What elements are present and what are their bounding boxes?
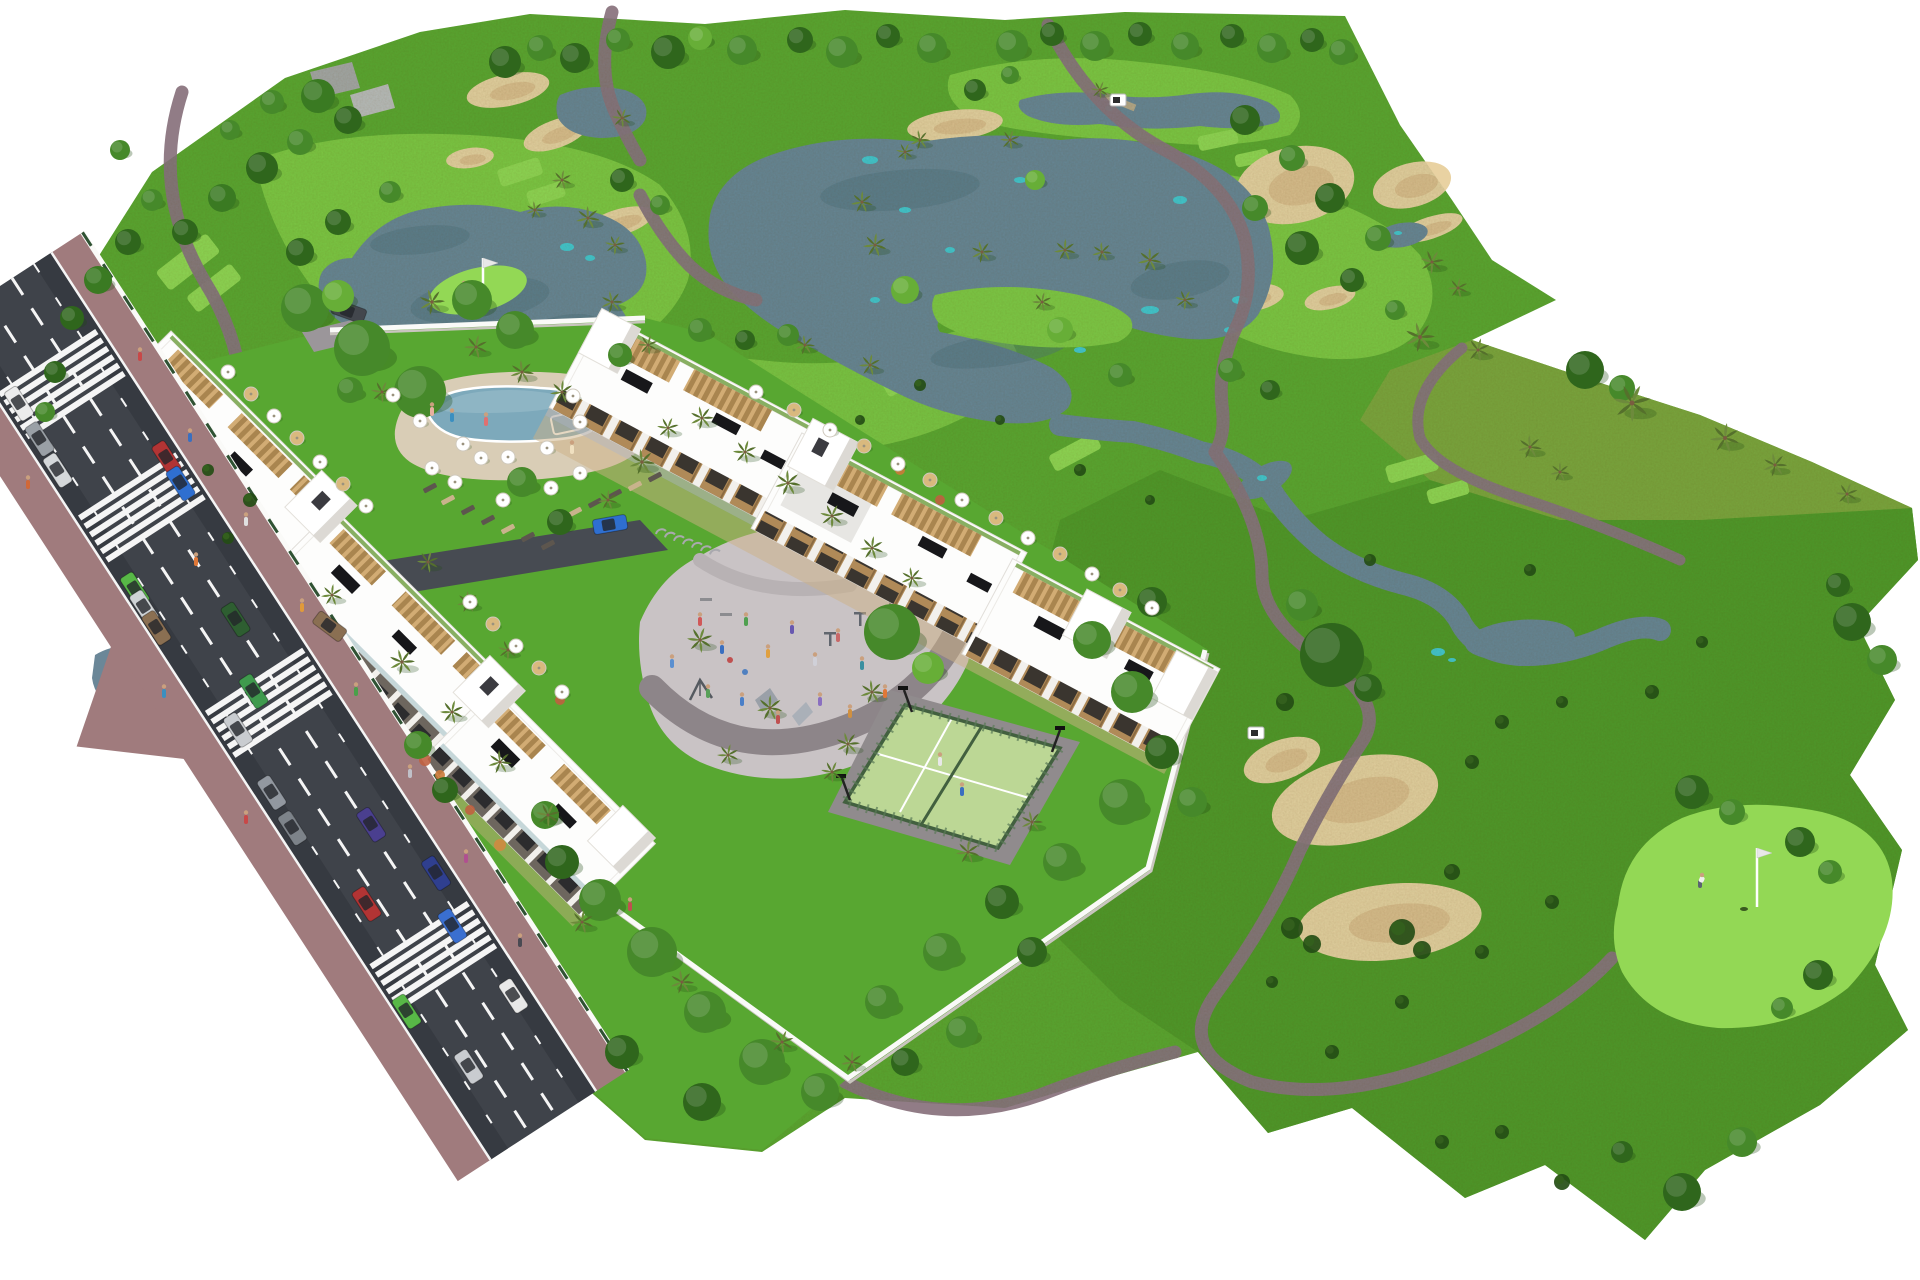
tree-highlight — [1666, 1176, 1687, 1197]
parasol-pole — [296, 437, 299, 440]
person — [706, 684, 710, 698]
person — [766, 644, 770, 658]
person-head — [766, 644, 770, 648]
person-head — [818, 692, 822, 696]
parasol-pole — [480, 457, 483, 460]
person-head — [628, 897, 632, 901]
person — [188, 428, 192, 442]
tree-highlight — [966, 81, 978, 93]
bush-highlight — [1075, 465, 1082, 472]
tree-highlight — [46, 363, 58, 375]
palm-trunk-top — [911, 577, 914, 580]
tree-highlight — [1110, 365, 1123, 378]
palm-trunk-top — [546, 813, 549, 816]
person-body — [790, 625, 794, 634]
tree-highlight — [926, 936, 947, 957]
parasol-pole — [550, 487, 553, 490]
tree-highlight — [998, 32, 1016, 50]
person — [430, 402, 434, 416]
bush-highlight — [1436, 1136, 1444, 1144]
person-body — [138, 352, 142, 361]
bush-highlight — [1283, 919, 1295, 931]
palm-trunk-top — [586, 216, 589, 219]
person-body — [628, 902, 632, 911]
person — [408, 764, 412, 778]
palm-trunk-top — [780, 1040, 783, 1043]
parasol-pole — [431, 467, 434, 470]
parasol-pole — [1059, 553, 1062, 556]
tree-highlight — [919, 35, 936, 52]
person-head — [300, 598, 304, 602]
parasol-pole — [579, 421, 582, 424]
parasol-pole — [863, 445, 866, 448]
person-body — [740, 697, 744, 706]
person-body — [188, 433, 192, 442]
person-head — [138, 347, 142, 351]
tree-highlight — [1678, 778, 1697, 797]
tree-highlight — [499, 314, 520, 335]
tree-highlight — [1828, 575, 1841, 588]
palm-trunk-top — [680, 980, 683, 983]
parasol-pole — [755, 391, 758, 394]
tree-highlight — [434, 779, 448, 793]
tree-highlight — [804, 1076, 825, 1097]
golf-cart — [1248, 727, 1264, 739]
tree-highlight — [1281, 147, 1295, 161]
palm-trunk-top — [1184, 299, 1187, 302]
tree-highlight — [893, 1050, 908, 1065]
tree-highlight — [1805, 962, 1822, 979]
person — [354, 682, 358, 696]
person-head — [836, 628, 840, 632]
palm-trunk-top — [580, 920, 583, 923]
tree-highlight — [1869, 647, 1886, 664]
person — [960, 782, 964, 796]
parasol-pole — [492, 623, 495, 626]
palm-trunk-top — [966, 850, 969, 853]
person-head — [188, 428, 192, 432]
tree-highlight — [1114, 674, 1137, 697]
palm-trunk-top — [1041, 301, 1044, 304]
tree-highlight — [828, 38, 846, 56]
tree-highlight — [1302, 30, 1315, 43]
person-head — [670, 654, 674, 658]
bush-highlight — [1496, 1126, 1504, 1134]
tree-highlight — [1773, 999, 1785, 1011]
palm-trunk-top — [846, 742, 849, 745]
palm-trunk-top — [647, 344, 650, 347]
palm-trunk-top — [981, 251, 984, 254]
tree-highlight — [338, 324, 369, 355]
person-body — [813, 657, 817, 666]
tree-highlight — [1049, 319, 1063, 333]
palm-trunk-top — [474, 345, 477, 348]
person-head — [698, 612, 702, 616]
palm-trunk-top — [381, 391, 384, 394]
tree-highlight — [1046, 846, 1067, 867]
person — [836, 628, 840, 642]
person-body — [408, 769, 412, 778]
tree-highlight — [1317, 185, 1334, 202]
person-head — [790, 620, 794, 624]
tree-highlight — [1082, 33, 1099, 50]
bush-highlight — [1546, 896, 1554, 904]
palm-trunk-top — [430, 300, 433, 303]
palm-trunk-top — [861, 201, 864, 204]
tree-highlight — [690, 28, 703, 41]
person-head — [776, 710, 780, 714]
palm-trunk-top — [507, 649, 510, 652]
person — [670, 654, 674, 668]
tree-highlight — [1244, 197, 1258, 211]
palm-trunk-top — [904, 151, 907, 154]
person-head — [570, 440, 574, 444]
tree-highlight — [1288, 591, 1306, 609]
parasol-pole — [502, 499, 505, 502]
person-head — [162, 684, 166, 688]
bush-highlight — [1414, 942, 1424, 952]
person-head — [194, 552, 198, 556]
person — [883, 684, 887, 698]
parasol-pole — [961, 499, 964, 502]
bush-highlight — [244, 494, 252, 502]
palm-trunk-top — [561, 179, 564, 182]
person — [484, 412, 488, 426]
tree-highlight — [1259, 35, 1276, 52]
tree-highlight — [631, 931, 659, 959]
palm-trunk-top — [1099, 89, 1102, 92]
bush-highlight — [1646, 686, 1654, 694]
car-window — [601, 518, 616, 531]
tree-highlight — [1356, 676, 1371, 691]
tree-highlight — [406, 733, 421, 748]
person-head — [848, 704, 852, 708]
tree-highlight — [737, 332, 748, 343]
palm-trunk-top — [1418, 335, 1422, 339]
palm-trunk-top — [621, 117, 624, 120]
tree-highlight — [1611, 377, 1625, 391]
parasol-pole — [546, 447, 549, 450]
person — [300, 598, 304, 612]
person-body — [570, 445, 574, 454]
palm-shadow — [1038, 305, 1055, 311]
palm-trunk-top — [873, 243, 876, 246]
masterplan-svg — [0, 0, 1920, 1280]
person-body — [244, 517, 248, 526]
person-head — [518, 933, 522, 937]
person-body — [450, 413, 454, 422]
tree-highlight — [1232, 107, 1249, 124]
person-head — [26, 475, 30, 479]
bush-highlight — [1445, 865, 1454, 874]
palm-trunk-top — [1430, 260, 1433, 263]
bush-highlight — [1557, 697, 1564, 704]
tree-highlight — [210, 186, 225, 201]
tree-highlight — [327, 211, 341, 225]
parasol-pole — [454, 481, 457, 484]
parasol-pole — [897, 463, 900, 466]
parasol-pole — [1119, 589, 1122, 592]
person-body — [698, 617, 702, 626]
person-body — [26, 480, 30, 489]
person — [938, 752, 942, 766]
palm-trunk-top — [450, 710, 453, 713]
palm-trunk-top — [427, 561, 430, 564]
tree-highlight — [1342, 270, 1355, 283]
tree-highlight — [1102, 782, 1127, 807]
parasol-pole — [365, 505, 368, 508]
tree-highlight — [1019, 939, 1036, 956]
palm-trunk-top — [611, 301, 614, 304]
person-body — [766, 649, 770, 658]
tree-highlight — [1042, 24, 1055, 37]
palm-trunk-top — [331, 594, 334, 597]
parasol-pole — [1027, 537, 1030, 540]
tree-highlight — [1148, 738, 1167, 757]
palm-trunk-top — [786, 481, 789, 484]
tree-highlight — [729, 37, 746, 54]
palm-trunk-top — [700, 416, 703, 419]
tree-highlight — [612, 170, 625, 183]
person-body — [354, 687, 358, 696]
bush-highlight — [1697, 637, 1704, 644]
person-head — [430, 402, 434, 406]
person — [162, 684, 166, 698]
golf-cart — [1110, 94, 1126, 106]
parasol-pole — [538, 667, 541, 670]
tree-highlight — [789, 29, 803, 43]
palm-trunk-top — [640, 460, 643, 463]
person — [813, 652, 817, 666]
palm-trunk-top — [727, 754, 730, 757]
palm-trunk-top — [1559, 471, 1562, 474]
person-head — [450, 408, 454, 412]
tree-highlight — [1820, 862, 1833, 875]
person-head — [484, 412, 488, 416]
palm-trunk-top — [1476, 348, 1479, 351]
person-body — [938, 757, 942, 766]
person — [464, 849, 468, 863]
person-head — [408, 764, 412, 768]
person-body — [860, 661, 864, 670]
bush-highlight — [1277, 694, 1287, 704]
palm-trunk-top — [1723, 436, 1727, 440]
parasol-pole — [561, 691, 564, 694]
person-body — [194, 557, 198, 566]
tree-highlight — [381, 183, 393, 195]
tree-highlight — [582, 882, 605, 905]
tree-highlight — [948, 1018, 966, 1036]
bush-highlight — [1326, 1046, 1334, 1054]
person-head — [720, 640, 724, 644]
tree-highlight — [37, 404, 48, 415]
tree-highlight — [398, 370, 427, 399]
tree-highlight — [288, 240, 303, 255]
tree-highlight — [1173, 34, 1188, 49]
person-head — [464, 849, 468, 853]
person-head — [883, 684, 887, 688]
palm-trunk-top — [1528, 445, 1531, 448]
parasol-pole — [515, 645, 518, 648]
palm-trunk-top — [768, 706, 771, 709]
parasol-pole — [929, 479, 932, 482]
cart-seat — [1251, 730, 1258, 736]
person-body — [848, 709, 852, 718]
person — [848, 704, 852, 718]
tree-highlight — [654, 38, 673, 57]
tree-highlight — [549, 511, 563, 525]
tree-highlight — [491, 48, 509, 66]
person — [720, 640, 724, 654]
person-body — [706, 689, 710, 698]
tree-highlight — [548, 848, 567, 867]
palm-trunk-top — [614, 244, 617, 247]
tree-highlight — [222, 122, 233, 133]
tree-highlight — [455, 283, 477, 305]
person-body — [720, 645, 724, 654]
parasol-pole — [462, 443, 465, 446]
bush-highlight — [1146, 496, 1152, 502]
palm-trunk-top — [560, 390, 563, 393]
tree-highlight — [687, 994, 710, 1017]
palm-trunk-top — [1630, 401, 1635, 406]
tree-highlight — [112, 142, 123, 153]
tree-highlight — [304, 82, 323, 101]
person-body — [960, 787, 964, 796]
tree-highlight — [289, 131, 303, 145]
parasol-pole — [572, 395, 575, 398]
parasol-pole — [342, 483, 345, 486]
tree-highlight — [988, 888, 1007, 907]
palm-trunk-top — [400, 660, 403, 663]
parasol-pole — [250, 393, 253, 396]
person — [244, 512, 248, 526]
flowering-shrub — [494, 839, 506, 851]
bush-highlight — [223, 533, 230, 540]
palm-trunk-top — [743, 450, 746, 453]
person-body — [300, 603, 304, 612]
tree-highlight — [868, 988, 887, 1007]
palm-trunk-top — [1773, 463, 1776, 466]
tree-highlight — [1305, 628, 1340, 663]
person — [818, 692, 822, 706]
bush-highlight — [856, 416, 862, 422]
tree-highlight — [610, 345, 623, 358]
tree-highlight — [1729, 1129, 1746, 1146]
palm-trunk-top — [870, 690, 873, 693]
tree-highlight — [1836, 606, 1857, 627]
palm-trunk-top — [534, 209, 537, 212]
palm-trunk-top — [667, 427, 670, 430]
parasol-pole — [419, 420, 422, 423]
parasol-pole — [227, 371, 230, 374]
flowering-shrub — [935, 495, 945, 505]
person-head — [744, 612, 748, 616]
bush-highlight — [1391, 921, 1405, 935]
masterplan-render — [0, 0, 1920, 1280]
person — [744, 612, 748, 626]
parasol-pole — [1091, 573, 1094, 576]
golfer-head — [1700, 873, 1704, 877]
tree-highlight — [779, 326, 791, 338]
tree-highlight — [339, 379, 353, 393]
person — [698, 612, 702, 626]
person — [450, 408, 454, 422]
bush-highlight — [1466, 756, 1474, 764]
person-body — [162, 689, 166, 698]
tree-highlight — [562, 45, 579, 62]
tree-highlight — [1721, 801, 1735, 815]
person — [194, 552, 198, 566]
tree-highlight — [686, 1086, 707, 1107]
parasol-pole — [507, 456, 510, 459]
person-head — [244, 810, 248, 814]
parasol-pole — [392, 394, 395, 397]
palm-trunk-top — [831, 771, 834, 774]
person-head — [244, 512, 248, 516]
tree-highlight — [1387, 302, 1398, 313]
parasol-pole — [319, 461, 322, 464]
palm-trunk-top — [869, 364, 872, 367]
parasol-pole — [273, 415, 276, 418]
tree-highlight — [608, 30, 621, 43]
person — [518, 933, 522, 947]
parasol-pole — [793, 409, 796, 412]
tree-highlight — [262, 92, 275, 105]
tree-highlight — [336, 108, 351, 123]
parasol-pole — [469, 601, 472, 604]
tree-highlight — [1331, 41, 1345, 55]
tree-highlight — [1076, 624, 1097, 645]
cart-seat — [1113, 97, 1120, 103]
parasol-pole — [829, 429, 832, 432]
tree-highlight — [1220, 360, 1233, 373]
bush-highlight — [1555, 1175, 1564, 1184]
bush-highlight — [1365, 555, 1372, 562]
bush-highlight — [203, 465, 210, 472]
palm-shadow — [740, 455, 760, 462]
tree-highlight — [1787, 829, 1804, 846]
tree-highlight — [1179, 789, 1196, 806]
person — [628, 897, 632, 911]
palm-trunk-top — [804, 344, 807, 347]
palm-trunk-top — [607, 499, 610, 502]
palm-trunk-top — [851, 1061, 854, 1064]
palm-shadow — [447, 715, 467, 722]
person-head — [938, 752, 942, 756]
tree-highlight — [285, 288, 311, 314]
palm-trunk-top — [520, 370, 523, 373]
palm-trunk-top — [1101, 251, 1104, 254]
person-body — [670, 659, 674, 668]
bush-highlight — [1304, 936, 1314, 946]
bush-highlight — [996, 416, 1002, 422]
flowering-shrub — [465, 805, 475, 815]
person-body — [776, 715, 780, 724]
tree-highlight — [1130, 24, 1143, 37]
person-body — [244, 815, 248, 824]
palm-trunk-top — [1031, 821, 1034, 824]
bush-highlight — [915, 380, 922, 387]
person-body — [744, 617, 748, 626]
tree-highlight — [608, 1038, 627, 1057]
tree-highlight — [62, 308, 75, 321]
person-head — [354, 682, 358, 686]
tree-highlight — [1288, 234, 1307, 253]
person — [776, 710, 780, 724]
person-head — [813, 652, 817, 656]
tree-highlight — [509, 469, 526, 486]
